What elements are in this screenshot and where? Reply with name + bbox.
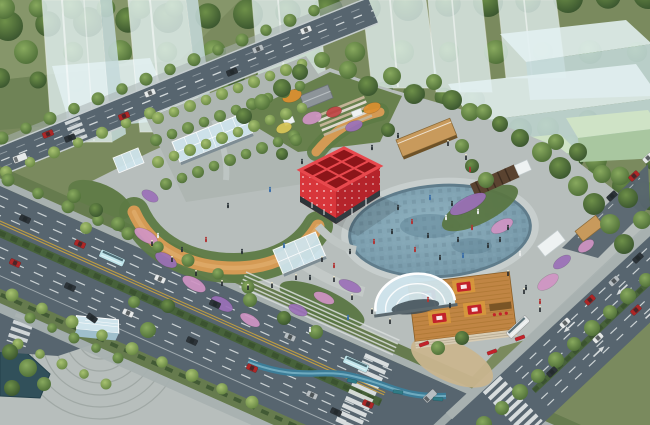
tree bbox=[256, 142, 268, 154]
tree bbox=[214, 110, 226, 122]
pedestrian bbox=[283, 243, 285, 248]
pedestrian bbox=[469, 167, 471, 172]
tree bbox=[618, 188, 638, 208]
tree bbox=[152, 112, 164, 124]
tree bbox=[201, 95, 212, 106]
pedestrian bbox=[349, 249, 351, 254]
pedestrian bbox=[487, 243, 489, 248]
tree bbox=[603, 305, 617, 319]
tree bbox=[67, 189, 81, 203]
pedestrian bbox=[205, 237, 207, 242]
light-bollard bbox=[171, 256, 173, 262]
pedestrian bbox=[269, 187, 271, 192]
light-bollard bbox=[247, 284, 249, 290]
tree bbox=[212, 268, 223, 279]
tree bbox=[6, 289, 19, 302]
tree bbox=[126, 342, 139, 355]
tree bbox=[80, 222, 92, 234]
tree bbox=[160, 178, 172, 190]
pedestrian bbox=[445, 215, 447, 220]
light-bollard bbox=[371, 308, 373, 314]
light-bollard bbox=[389, 318, 391, 324]
tree bbox=[465, 159, 479, 173]
tree bbox=[236, 108, 252, 124]
tree bbox=[620, 288, 636, 304]
tree bbox=[600, 214, 620, 234]
pedestrian bbox=[309, 275, 311, 280]
tree bbox=[177, 173, 188, 184]
tree bbox=[91, 343, 101, 353]
tree bbox=[246, 396, 259, 409]
tree bbox=[276, 148, 288, 160]
tree bbox=[339, 61, 357, 79]
tree bbox=[2, 174, 15, 187]
tree bbox=[19, 359, 37, 377]
tree bbox=[140, 322, 156, 338]
light-bollard bbox=[351, 294, 353, 300]
pedestrian bbox=[525, 285, 527, 290]
tree bbox=[290, 134, 302, 146]
pedestrian bbox=[471, 225, 473, 230]
tree bbox=[248, 120, 260, 132]
tree bbox=[188, 53, 201, 66]
tree bbox=[66, 315, 79, 328]
tree bbox=[101, 379, 112, 390]
light-bollard bbox=[539, 306, 541, 312]
rendering-canvas bbox=[0, 0, 650, 425]
pedestrian bbox=[371, 145, 373, 150]
tree bbox=[44, 112, 57, 125]
pedestrian bbox=[397, 133, 399, 138]
tree bbox=[79, 369, 89, 379]
tree bbox=[548, 352, 564, 368]
tree bbox=[37, 377, 51, 391]
tree bbox=[455, 139, 469, 153]
tree bbox=[140, 73, 153, 86]
tree bbox=[280, 108, 292, 120]
tree bbox=[297, 103, 308, 114]
pedestrian bbox=[347, 315, 349, 320]
tree bbox=[182, 122, 194, 134]
tree bbox=[96, 329, 107, 340]
bench bbox=[433, 397, 443, 401]
tree bbox=[476, 104, 492, 120]
tree bbox=[216, 132, 228, 144]
tree bbox=[260, 24, 271, 35]
tree bbox=[167, 129, 178, 140]
pedestrian bbox=[181, 247, 183, 252]
light-bollard bbox=[507, 270, 509, 276]
light-bollard bbox=[321, 256, 323, 262]
tree bbox=[199, 117, 210, 128]
tree bbox=[216, 88, 228, 100]
pedestrian bbox=[477, 209, 479, 214]
pedestrian bbox=[414, 247, 416, 252]
tree bbox=[186, 369, 199, 382]
tree bbox=[47, 323, 57, 333]
tree bbox=[128, 296, 140, 308]
light-bollard bbox=[195, 270, 197, 276]
pedestrian bbox=[373, 239, 375, 244]
tree bbox=[404, 84, 424, 104]
tree bbox=[383, 67, 401, 85]
tree bbox=[567, 337, 581, 351]
tree bbox=[25, 313, 36, 324]
tree bbox=[233, 127, 244, 138]
light-bollard bbox=[333, 276, 335, 282]
pedestrian bbox=[301, 159, 303, 164]
tree bbox=[309, 325, 323, 339]
tree bbox=[442, 90, 462, 110]
tree bbox=[548, 134, 564, 150]
tree bbox=[32, 188, 43, 199]
tree bbox=[224, 154, 236, 166]
tree bbox=[2, 344, 18, 360]
tree bbox=[254, 94, 270, 110]
tree bbox=[20, 122, 31, 133]
tree bbox=[295, 81, 306, 92]
tree bbox=[36, 303, 47, 314]
tree bbox=[241, 149, 252, 160]
pedestrian bbox=[451, 201, 453, 206]
tree bbox=[216, 383, 227, 394]
pedestrian bbox=[457, 237, 459, 242]
tree bbox=[495, 401, 509, 415]
tree bbox=[273, 79, 291, 97]
tree bbox=[161, 299, 175, 313]
tree bbox=[57, 359, 68, 370]
tree bbox=[236, 34, 249, 47]
pedestrian bbox=[227, 203, 229, 208]
light-bollard bbox=[523, 288, 525, 294]
tree bbox=[426, 74, 442, 90]
tree bbox=[512, 384, 528, 400]
pedestrian bbox=[427, 297, 429, 302]
light-bollard bbox=[151, 240, 153, 246]
tree bbox=[152, 241, 163, 252]
pedestrian bbox=[411, 219, 413, 224]
tree bbox=[273, 137, 284, 148]
tree bbox=[201, 139, 212, 150]
tree bbox=[192, 166, 204, 178]
pedestrian bbox=[333, 263, 335, 268]
tree bbox=[35, 349, 45, 359]
pedestrian bbox=[449, 303, 451, 308]
pedestrian bbox=[391, 229, 393, 234]
tree bbox=[584, 320, 600, 336]
tree bbox=[68, 103, 79, 114]
tree bbox=[455, 331, 469, 345]
tree bbox=[358, 76, 378, 96]
tree bbox=[122, 227, 135, 240]
tree bbox=[611, 167, 630, 186]
pedestrian bbox=[429, 195, 431, 200]
tree bbox=[568, 176, 588, 196]
tree bbox=[89, 203, 103, 217]
pedestrian bbox=[157, 233, 159, 238]
light-bollard bbox=[447, 140, 449, 146]
tree bbox=[593, 165, 611, 183]
tree bbox=[243, 293, 257, 307]
tree bbox=[531, 369, 545, 383]
tree bbox=[92, 92, 105, 105]
pedestrian bbox=[397, 205, 399, 210]
pedestrian bbox=[462, 253, 464, 258]
tree bbox=[164, 64, 175, 75]
tree bbox=[169, 107, 180, 118]
tree bbox=[265, 71, 276, 82]
tree bbox=[431, 341, 445, 355]
tree bbox=[511, 129, 529, 147]
tree bbox=[280, 64, 292, 76]
tree bbox=[212, 44, 223, 55]
tree bbox=[152, 156, 164, 168]
tree bbox=[169, 151, 180, 162]
aerial-rendering bbox=[0, 0, 650, 425]
tree bbox=[381, 123, 395, 137]
pedestrian bbox=[539, 299, 541, 304]
light-bollard bbox=[295, 274, 297, 280]
tree bbox=[308, 5, 319, 16]
tree bbox=[113, 353, 124, 364]
tree bbox=[233, 83, 244, 94]
pedestrian bbox=[499, 237, 501, 242]
tree bbox=[4, 380, 20, 396]
tree bbox=[184, 100, 196, 112]
light-bollard bbox=[465, 154, 467, 160]
tree bbox=[116, 83, 127, 94]
pedestrian bbox=[439, 255, 441, 260]
pedestrian bbox=[309, 327, 311, 332]
tree bbox=[150, 134, 162, 146]
tree bbox=[492, 116, 508, 132]
tree bbox=[265, 115, 276, 126]
tree bbox=[111, 217, 125, 231]
tree bbox=[30, 72, 47, 89]
light-bollard bbox=[271, 282, 273, 288]
tree bbox=[478, 172, 494, 188]
tree bbox=[345, 42, 365, 62]
tree bbox=[96, 127, 108, 139]
tree bbox=[48, 146, 60, 158]
tree bbox=[614, 234, 634, 254]
tree bbox=[569, 143, 587, 161]
tree bbox=[209, 161, 220, 172]
tree bbox=[248, 76, 260, 88]
tree bbox=[314, 52, 330, 68]
tree bbox=[277, 311, 291, 325]
pedestrian bbox=[427, 233, 429, 238]
pedestrian bbox=[507, 225, 509, 230]
tree bbox=[14, 40, 38, 64]
pedestrian bbox=[519, 251, 521, 256]
tree bbox=[69, 333, 80, 344]
tree bbox=[284, 14, 297, 27]
pedestrian bbox=[241, 249, 243, 254]
tree bbox=[549, 157, 571, 179]
light-bollard bbox=[221, 280, 223, 286]
tree bbox=[583, 193, 605, 215]
tree bbox=[184, 144, 196, 156]
tree bbox=[292, 64, 308, 80]
tree bbox=[156, 356, 167, 367]
tree bbox=[182, 254, 195, 267]
